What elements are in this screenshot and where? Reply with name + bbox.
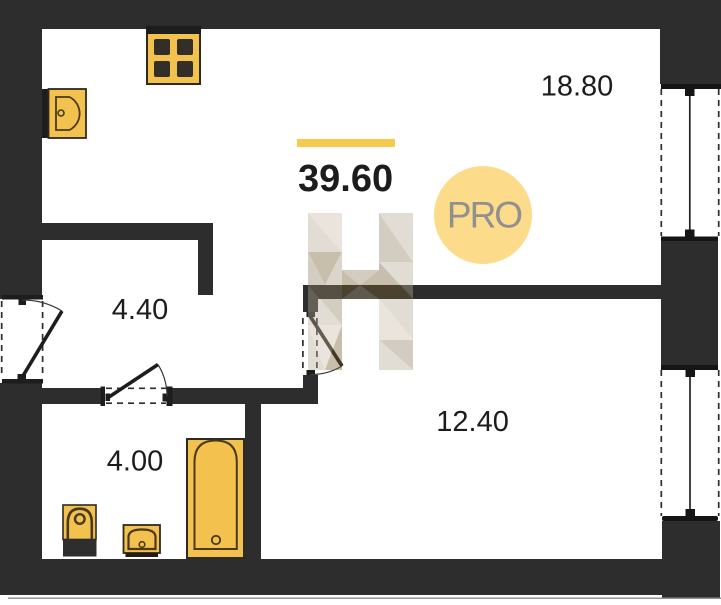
svg-text:18.80: 18.80 [541, 70, 614, 102]
svg-text:4.40: 4.40 [112, 294, 168, 326]
svg-text:PRO: PRO [447, 195, 522, 236]
svg-text:12.40: 12.40 [436, 406, 509, 438]
svg-text:4.00: 4.00 [107, 446, 163, 478]
svg-text:39.60: 39.60 [298, 158, 393, 200]
